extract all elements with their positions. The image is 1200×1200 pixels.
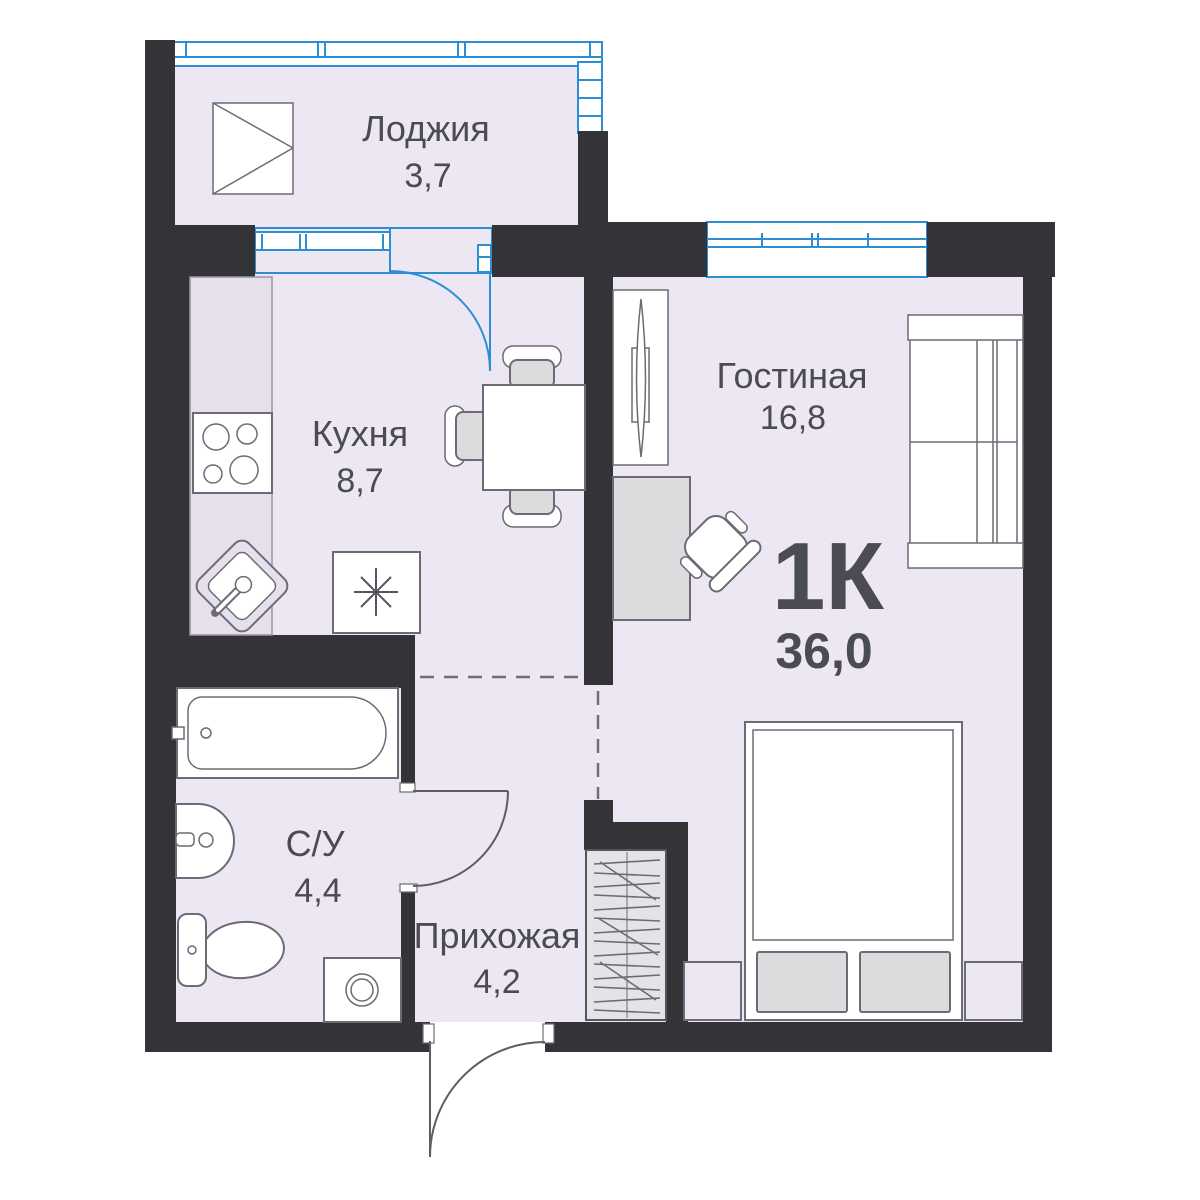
living-area: 16,8	[760, 399, 826, 437]
apartment-type-label: 1К	[772, 523, 884, 630]
kitchen-window-icon	[255, 228, 390, 273]
apartment-floorplan: Лоджия 3,7 Кухня 8,7 Гостиная 16,8 С/У 4…	[0, 0, 1200, 1200]
wall-right	[1023, 222, 1052, 1052]
washing-machine-icon	[324, 958, 401, 1022]
wardrobe-icon	[586, 850, 666, 1020]
asterisk-marker	[333, 552, 420, 633]
pillow-right	[860, 952, 950, 1012]
tv-stand-icon	[613, 290, 668, 465]
nightstand-left	[684, 962, 741, 1020]
bathroom-label: С/У	[286, 823, 346, 864]
hallway-area: 4,2	[473, 963, 520, 1001]
wall-bottom-left	[145, 1022, 430, 1052]
wall-central	[584, 277, 613, 685]
living-label: Гостиная	[716, 355, 867, 396]
loggia-vent-icon	[213, 103, 293, 194]
pillow-left	[757, 952, 847, 1012]
living-window-icon	[707, 222, 927, 277]
floorplan-page: Лоджия 3,7 Кухня 8,7 Гостиная 16,8 С/У 4…	[0, 0, 1200, 1200]
wall-loggia-right	[578, 131, 608, 228]
loggia-side-glazing-icon	[578, 62, 602, 133]
wall-row-mid	[492, 225, 584, 277]
wall-wardrobe-top	[584, 822, 688, 850]
sofa-icon	[908, 315, 1023, 568]
wall-left-bath	[145, 688, 176, 1052]
hallway-label: Прихожая	[414, 915, 581, 956]
nightstand-right	[965, 962, 1022, 1020]
wall-top-a	[578, 222, 707, 277]
kitchen-label: Кухня	[312, 413, 408, 454]
wall-loggia-left	[145, 40, 175, 228]
bathroom-area: 4,4	[294, 872, 341, 910]
wall-bottom-right	[545, 1022, 1052, 1052]
loggia-glazing-icon	[172, 42, 602, 66]
dining-table	[483, 385, 585, 490]
stove-icon	[193, 413, 272, 493]
bathtub-icon	[172, 688, 398, 778]
chair-bottom-icon	[503, 486, 561, 527]
wall-bath-divider-upper	[401, 683, 415, 787]
chair-top-icon	[503, 346, 561, 388]
loggia-label: Лоджия	[362, 108, 490, 149]
chair-left-icon	[445, 406, 488, 466]
wall-bath-top	[145, 635, 415, 688]
loggia-area: 3,7	[404, 157, 451, 195]
apartment-total-area: 36,0	[775, 623, 872, 679]
kitchen-area: 8,7	[336, 462, 383, 500]
desk	[613, 477, 690, 620]
bed-icon	[745, 722, 962, 1020]
wall-left-kitchen	[145, 225, 190, 635]
